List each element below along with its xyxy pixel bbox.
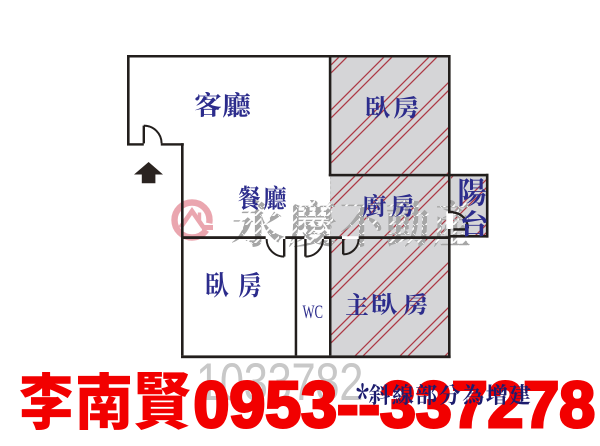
svg-text:WC: WC <box>303 302 324 323</box>
svg-text:0953--337278: 0953--337278 <box>194 369 596 441</box>
